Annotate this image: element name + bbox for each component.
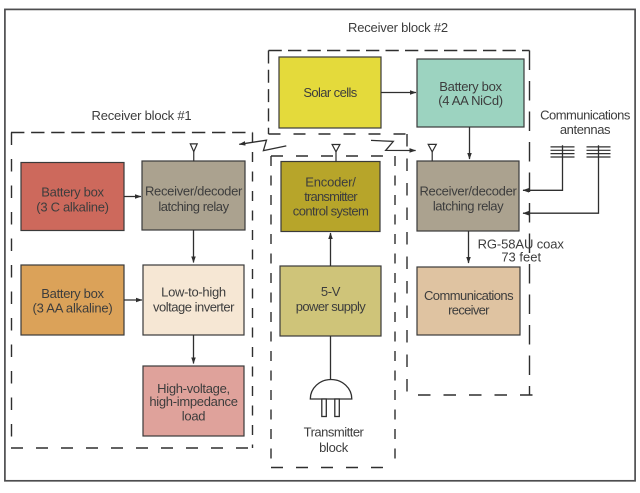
svg-text:power supply: power supply — [296, 299, 366, 314]
svg-text:Receiver/decoder: Receiver/decoder — [419, 183, 517, 198]
svg-text:Solar cells: Solar cells — [303, 85, 357, 100]
svg-text:receiver: receiver — [448, 303, 490, 318]
svg-text:73 feet: 73 feet — [501, 250, 541, 265]
svg-text:Transmitter: Transmitter — [304, 425, 365, 440]
svg-text:Battery box: Battery box — [41, 184, 104, 199]
svg-text:Low-to-high: Low-to-high — [161, 285, 226, 300]
svg-text:(4 AA NiCd): (4 AA NiCd) — [438, 93, 503, 108]
svg-text:antennas: antennas — [560, 122, 611, 137]
svg-text:Battery box: Battery box — [439, 79, 502, 94]
svg-text:(3 C alkaline): (3 C alkaline) — [36, 200, 108, 215]
svg-text:Encoder/: Encoder/ — [305, 174, 356, 189]
svg-text:load: load — [182, 408, 205, 423]
svg-text:control system: control system — [293, 203, 368, 218]
svg-text:Communications: Communications — [424, 288, 514, 303]
svg-text:latching relay: latching relay — [433, 198, 504, 213]
svg-text:Battery box: Battery box — [41, 286, 104, 301]
svg-text:(3 AA alkaline): (3 AA alkaline) — [32, 301, 112, 316]
svg-text:latching relay: latching relay — [158, 199, 229, 214]
svg-text:transmitter: transmitter — [304, 189, 358, 204]
svg-text:Receiver block #1: Receiver block #1 — [92, 108, 192, 123]
svg-text:voltage inverter: voltage inverter — [153, 300, 235, 315]
svg-text:block: block — [319, 440, 349, 455]
svg-text:Receiver/decoder: Receiver/decoder — [145, 184, 243, 199]
svg-text:Communications: Communications — [540, 108, 631, 123]
svg-text:high-impedance: high-impedance — [149, 394, 237, 409]
svg-text:5-V: 5-V — [321, 284, 341, 299]
svg-text:Receiver block #2: Receiver block #2 — [348, 20, 448, 35]
